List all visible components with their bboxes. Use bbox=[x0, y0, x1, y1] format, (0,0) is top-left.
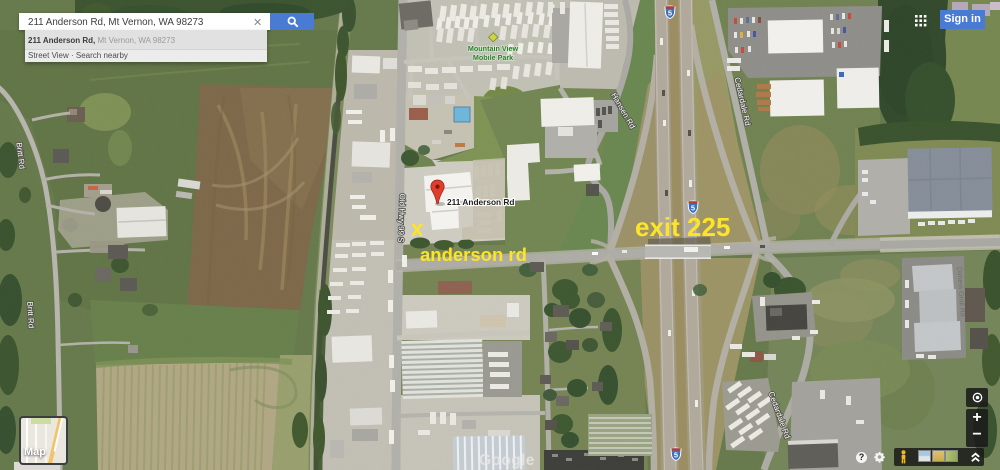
svg-text:Google: Google bbox=[479, 452, 535, 469]
svg-text:anderson rd: anderson rd bbox=[420, 244, 527, 265]
svg-text:exit 225: exit 225 bbox=[635, 212, 730, 242]
svg-text:211 Anderson Rd: 211 Anderson Rd bbox=[447, 197, 514, 207]
svg-text:x: x bbox=[411, 216, 424, 241]
